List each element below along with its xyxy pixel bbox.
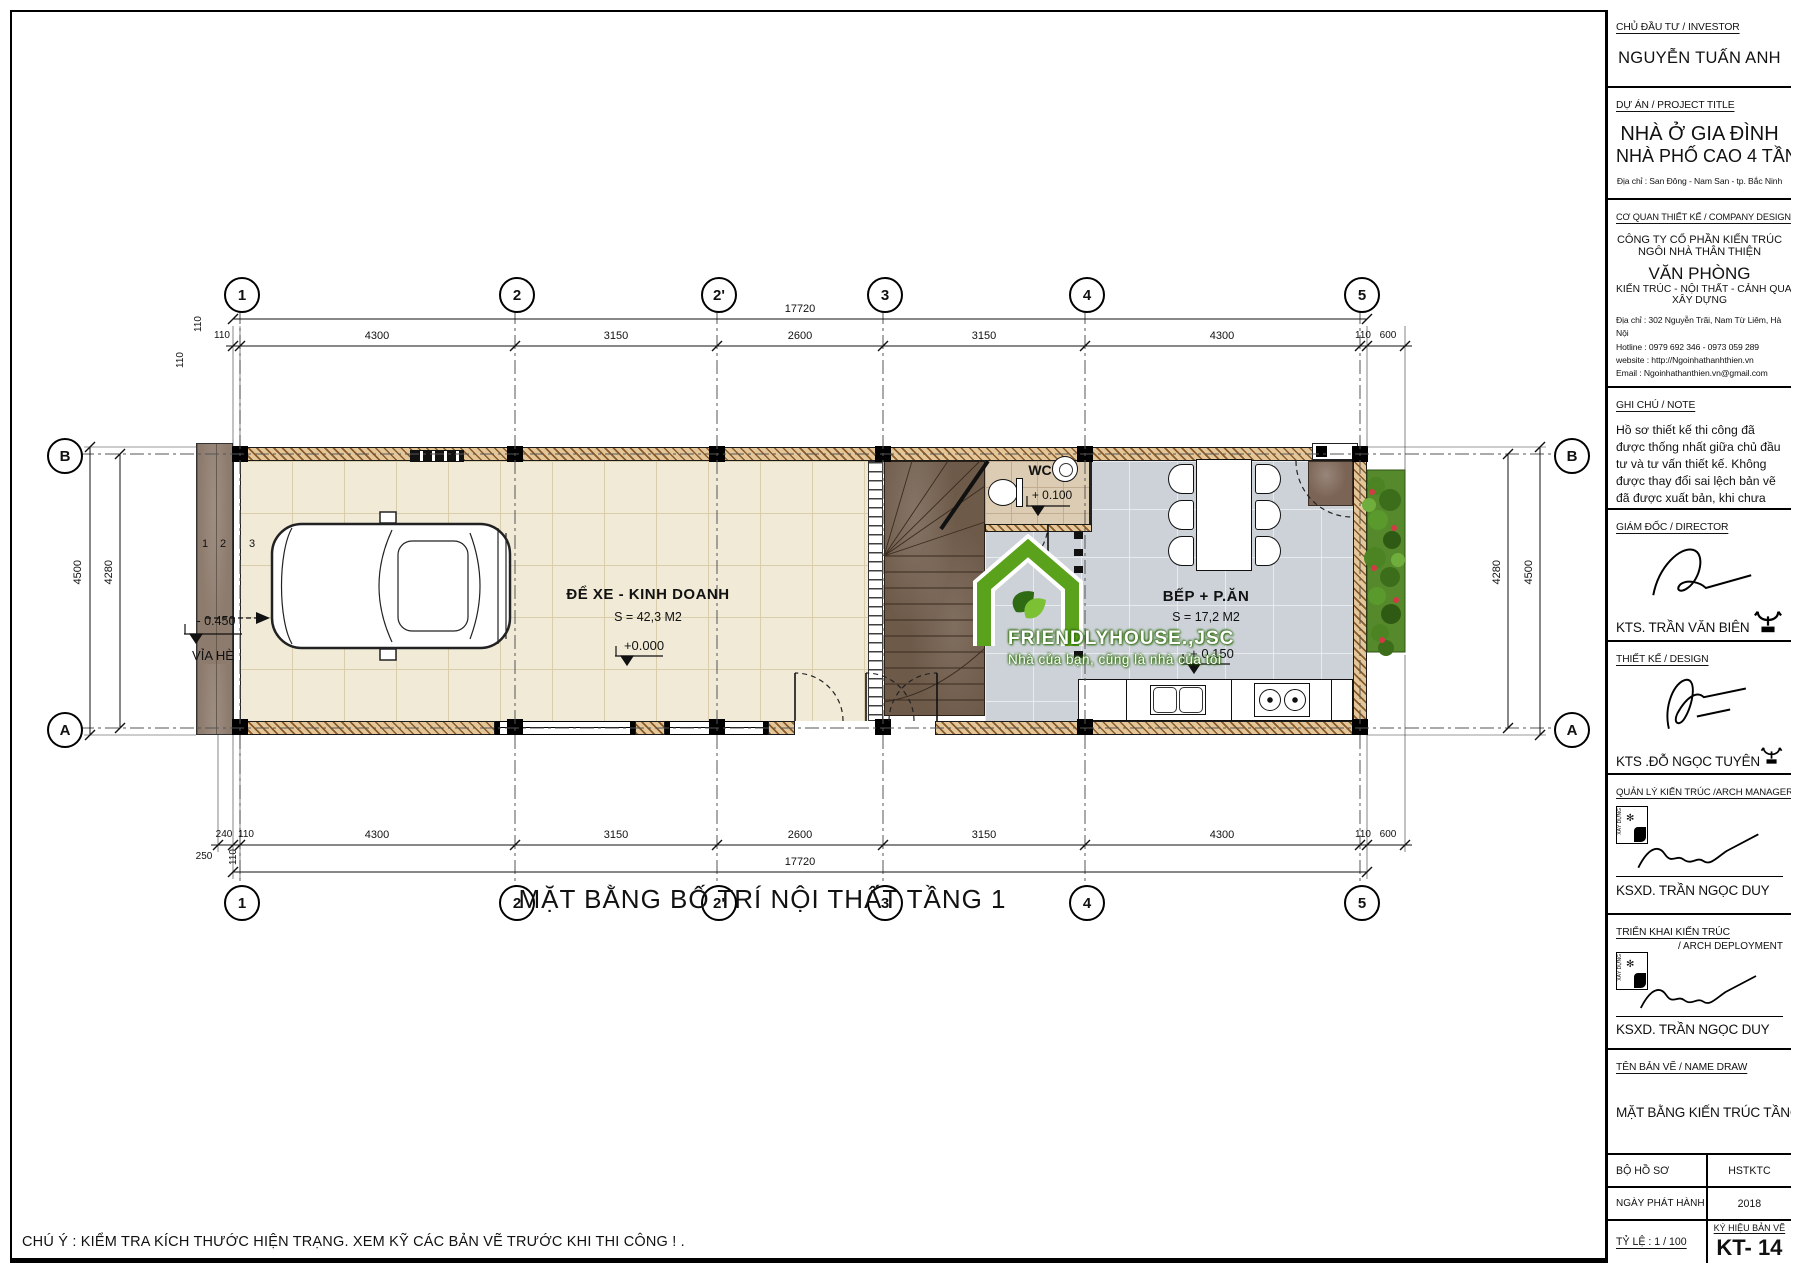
dim-label: 2600 bbox=[788, 829, 812, 841]
grid-bubble-B-left: B bbox=[47, 438, 83, 474]
logo-tagline: Nhà của bạn, cũng là nhà của tôi bbox=[1008, 652, 1221, 667]
car-icon bbox=[272, 512, 510, 660]
issue-date-value: 2018 bbox=[1708, 1188, 1791, 1219]
dim-label: 4300 bbox=[1210, 829, 1234, 841]
tb-company: CƠ QUAN THIẾT KẾ / COMPANY DESIGN CÔNG T… bbox=[1608, 200, 1791, 388]
grid-bubble-A-left: A bbox=[47, 712, 83, 748]
flower-icon: ✻ bbox=[1626, 813, 1634, 824]
dim-label: 4300 bbox=[1210, 330, 1234, 342]
tb-drawing-name: TÊN BẢN VẼ / NAME DRAW MẶT BẰNG KIẾN TRÚ… bbox=[1608, 1050, 1791, 1155]
grid-label: A bbox=[1567, 722, 1578, 739]
tb-deployment-heading: TRIỂN KHAI KIẾN TRÚC bbox=[1616, 927, 1730, 938]
stamp-text: XÂY DỰNG bbox=[1617, 954, 1623, 981]
dim-label: 110 bbox=[1355, 330, 1371, 341]
project-address: Địa chỉ : San Đông - Nam San - tp. Bắc N… bbox=[1616, 175, 1783, 188]
step-number: 1 bbox=[202, 538, 208, 550]
dim-label: 240 bbox=[216, 829, 233, 840]
grid-bubble-5b: 5 bbox=[1344, 885, 1380, 921]
stamp-text: XÂY DỰNG bbox=[1617, 808, 1623, 835]
tb-director: GIÁM ĐỐC / DIRECTOR KTS. TRẦN VĂN BIÊN bbox=[1608, 510, 1791, 642]
dim-label: 3150 bbox=[972, 330, 996, 342]
dim-label: 4280 bbox=[1491, 560, 1503, 584]
grid-bubble-2p: 2' bbox=[701, 277, 737, 313]
wc-diagonal-wall bbox=[941, 461, 988, 529]
tb-drawing-heading: TÊN BẢN VẼ / NAME DRAW bbox=[1616, 1062, 1747, 1073]
dossier-label: BỘ HỒ SƠ bbox=[1608, 1155, 1708, 1186]
step-number: 3 bbox=[249, 538, 255, 550]
plan-linework-layer bbox=[0, 0, 1800, 1273]
room-label-kitchen: BẾP + P.ĂN bbox=[1163, 588, 1250, 605]
tb-arch-manager: QUẢN LÝ KIẾN TRÚC /ARCH MANAGER XÂY DỰNG… bbox=[1608, 775, 1791, 915]
architect-seal-icon bbox=[1753, 607, 1783, 635]
step-number: 2 bbox=[220, 538, 226, 550]
note-text: Hồ sơ thiết kế thi công đã được thống nh… bbox=[1616, 422, 1783, 510]
company-email: Email : Ngoinhathanthien.vn@gmail.com bbox=[1616, 367, 1783, 380]
room-level-wc: + 0.100 bbox=[1032, 488, 1072, 502]
company-fields1: KIẾN TRÚC - NỘI THẤT - CẢNH QUAN bbox=[1616, 284, 1783, 295]
dim-label: 110 bbox=[175, 352, 186, 368]
dim-label: 4500 bbox=[72, 560, 84, 584]
dim-label: 110 bbox=[238, 829, 254, 840]
designer-signature bbox=[1637, 671, 1762, 741]
grid-label: A bbox=[60, 722, 71, 739]
tb-manager-heading: QUẢN LÝ KIẾN TRÚC /ARCH MANAGER bbox=[1616, 787, 1791, 798]
dim-label: 250 bbox=[196, 851, 213, 862]
training-stamp-icon: XÂY DỰNG ✻ bbox=[1616, 806, 1648, 844]
tb-investor-heading: CHỦ ĐẦU TƯ / INVESTOR bbox=[1616, 22, 1740, 33]
grid-bubble-A-right: A bbox=[1554, 712, 1590, 748]
info-row-date: NGÀY PHÁT HÀNH 2018 bbox=[1608, 1186, 1791, 1219]
issue-date-label: NGÀY PHÁT HÀNH bbox=[1608, 1188, 1708, 1219]
grid-label: B bbox=[60, 448, 71, 465]
logo-company-name: FRIENDLYHOUSE.,JSC bbox=[1008, 628, 1234, 650]
grid-label: 2 bbox=[513, 287, 521, 304]
grid-label: 3 bbox=[881, 287, 889, 304]
tb-director-heading: GIÁM ĐỐC / DIRECTOR bbox=[1616, 522, 1728, 533]
tb-note-heading: GHI CHÚ / NOTE bbox=[1616, 400, 1695, 411]
room-label-wc: WC bbox=[1028, 462, 1051, 478]
company-hotline: Hotline : 0979 692 346 - 0973 059 289 bbox=[1616, 341, 1783, 354]
drawing-title: MẶT BẰNG BỐ TRÍ NỘI THẤT TẦNG 1 bbox=[480, 884, 1045, 915]
room-level-garage: +0.000 bbox=[624, 638, 664, 653]
project-title-line2: NHÀ PHỐ CAO 4 TẦNG bbox=[1616, 146, 1783, 167]
info-row-dossier: BỘ HỒ SƠ HSTKTC bbox=[1608, 1155, 1791, 1186]
dim-label: 4280 bbox=[103, 560, 115, 584]
dim-label: 17720 bbox=[785, 303, 816, 315]
grid-label: 1 bbox=[238, 287, 246, 304]
grid-label: 4 bbox=[1083, 287, 1091, 304]
grid-bubble-2: 2 bbox=[499, 277, 535, 313]
dim-label: 4500 bbox=[1523, 560, 1535, 584]
grid-bubble-1: 1 bbox=[224, 277, 260, 313]
dim-label: 110 bbox=[214, 330, 230, 341]
room-label-garage: ĐỂ XE - KINH DOANH bbox=[566, 586, 729, 603]
sidewalk-level: - 0.450 bbox=[197, 614, 236, 628]
company-fields2: XÂY DỰNG bbox=[1616, 295, 1783, 306]
flower-icon: ✻ bbox=[1626, 959, 1634, 970]
tb-deployment-heading2: / ARCH DEPLOYMENT bbox=[1616, 941, 1783, 952]
grid-label: 5 bbox=[1358, 895, 1366, 912]
tb-note: GHI CHÚ / NOTE Hồ sơ thiết kế thi công đ… bbox=[1608, 388, 1791, 510]
tb-design-heading: THIẾT KẾ / DESIGN bbox=[1616, 654, 1709, 665]
director-name: KTS. TRẦN VĂN BIÊN bbox=[1616, 620, 1749, 635]
director-signature bbox=[1637, 539, 1762, 607]
training-stamp-icon: XÂY DỰNG ✻ bbox=[1616, 952, 1648, 990]
sidewalk-label: VỈA HÈ bbox=[192, 648, 234, 663]
planter-plants bbox=[1362, 470, 1405, 656]
room-area-kitchen: S = 17,2 M2 bbox=[1172, 610, 1240, 624]
dim-label: 4300 bbox=[365, 829, 389, 841]
project-title-line1: NHÀ Ở GIA ĐÌNH bbox=[1616, 123, 1783, 146]
scale-label: TỶ LỆ : 1 / 100 bbox=[1608, 1221, 1708, 1263]
title-block: CHỦ ĐẦU TƯ / INVESTOR NGUYỄN TUẤN ANH DỰ… bbox=[1605, 10, 1791, 1263]
drawing-sheet: 1 2 2' 3 4 5 1 2 2' 3 4 5 B A B A 17720 … bbox=[0, 0, 1800, 1273]
grid-bubble-4b: 4 bbox=[1069, 885, 1105, 921]
tb-project: DỰ ÁN / PROJECT TITLE NHÀ Ở GIA ĐÌNH NHÀ… bbox=[1608, 88, 1791, 200]
grid-label: 4 bbox=[1083, 895, 1091, 912]
company-address: Địa chỉ : 302 Nguyễn Trãi, Nam Từ Liêm, … bbox=[1616, 314, 1783, 341]
dim-label: 600 bbox=[1380, 829, 1397, 840]
grid-bubble-5: 5 bbox=[1344, 277, 1380, 313]
dim-label: 3150 bbox=[604, 829, 628, 841]
architect-seal-icon bbox=[1760, 741, 1783, 769]
company-website: website : http://Ngoinhathanhthien.vn bbox=[1616, 354, 1783, 367]
grid-bubble-B-right: B bbox=[1554, 438, 1590, 474]
company-name-line2: NGÔI NHÀ THÂN THIỆN bbox=[1616, 246, 1783, 258]
tb-project-heading: DỰ ÁN / PROJECT TITLE bbox=[1616, 100, 1734, 111]
tb-investor: CHỦ ĐẦU TƯ / INVESTOR NGUYỄN TUẤN ANH bbox=[1608, 10, 1791, 88]
grid-label: 1 bbox=[238, 895, 246, 912]
designer-name: KTS .ĐỖ NGỌC TUYÊN bbox=[1616, 754, 1760, 769]
grid-label: B bbox=[1567, 448, 1578, 465]
tb-deployment: TRIỂN KHAI KIẾN TRÚC / ARCH DEPLOYMENT X… bbox=[1608, 915, 1791, 1050]
grid-bubble-3: 3 bbox=[867, 277, 903, 313]
info-row-scale-symbol: TỶ LỆ : 1 / 100 KÝ HIỆU BẢN VẼ KT- 14 bbox=[1608, 1219, 1791, 1263]
grid-bubble-1b: 1 bbox=[224, 885, 260, 921]
company-name-line1: CÔNG TY CỔ PHẦN KIẾN TRÚC bbox=[1616, 234, 1783, 246]
dim-label: 3150 bbox=[972, 829, 996, 841]
deployment-name: KSXD. TRẦN NGỌC DUY bbox=[1616, 1022, 1783, 1037]
dim-label: 110 bbox=[1355, 829, 1371, 840]
tb-design: THIẾT KẾ / DESIGN KTS .ĐỖ NGỌC TUYÊN bbox=[1608, 642, 1791, 775]
room-area-garage: S = 42,3 M2 bbox=[614, 610, 682, 624]
symbol-value: KT- 14 bbox=[1716, 1235, 1782, 1261]
dossier-value: HSTKTC bbox=[1708, 1155, 1791, 1186]
dim-label: 110 bbox=[193, 316, 204, 332]
grid-label: 5 bbox=[1358, 287, 1366, 304]
investor-name: NGUYỄN TUẤN ANH bbox=[1616, 49, 1783, 68]
drawing-name: MẶT BẰNG KIẾN TRÚC TẦNG1 bbox=[1616, 1105, 1783, 1120]
symbol-label: KÝ HIỆU BẢN VẼ bbox=[1714, 1223, 1786, 1233]
grid-label: 2' bbox=[713, 287, 725, 304]
dim-label: 110 bbox=[228, 849, 239, 865]
dim-label: 17720 bbox=[785, 856, 816, 868]
grid-bubble-4: 4 bbox=[1069, 277, 1105, 313]
dim-label: 2600 bbox=[788, 330, 812, 342]
tb-info-table: BỘ HỒ SƠ HSTKTC NGÀY PHÁT HÀNH 2018 TỶ L… bbox=[1608, 1155, 1791, 1263]
tb-company-heading: CƠ QUAN THIẾT KẾ / COMPANY DESIGN bbox=[1616, 212, 1791, 222]
caution-note: CHÚ Ý : KIỂM TRA KÍCH THƯỚC HIỆN TRẠNG. … bbox=[22, 1234, 685, 1250]
manager-name: KSXD. TRẦN NGỌC DUY bbox=[1616, 883, 1783, 898]
company-office: VĂN PHÒNG bbox=[1616, 264, 1783, 284]
dim-label: 3150 bbox=[604, 330, 628, 342]
dim-label: 4300 bbox=[365, 330, 389, 342]
dim-label: 600 bbox=[1380, 330, 1397, 341]
